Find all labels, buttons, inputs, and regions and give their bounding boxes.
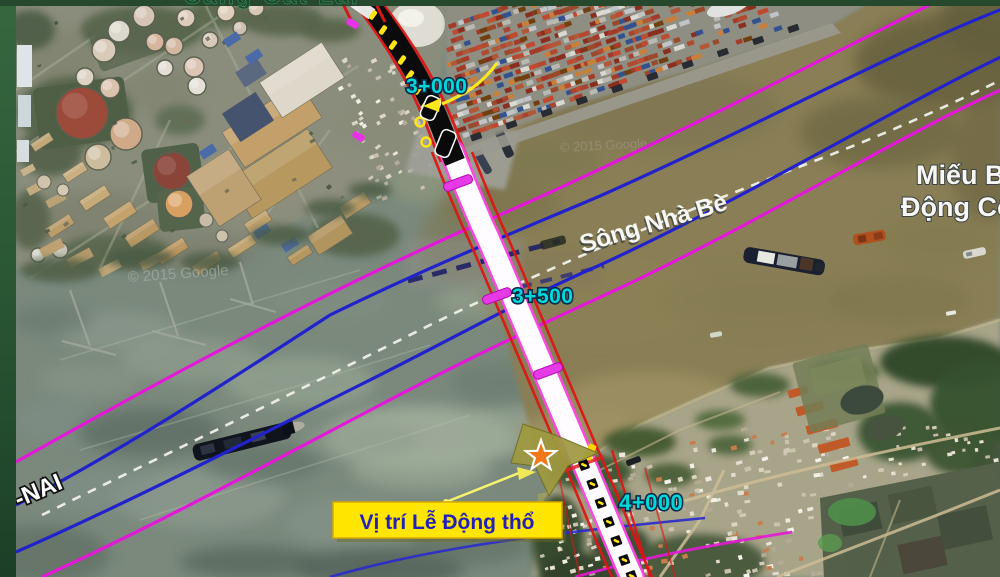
svg-text:Động Cổ: Động Cổ <box>901 192 1000 222</box>
svg-text:3+500: 3+500 <box>512 285 573 308</box>
svg-text:3+000: 3+000 <box>406 75 467 98</box>
svg-text:Miếu B: Miếu B <box>916 160 1000 190</box>
svg-text:4+000: 4+000 <box>619 490 683 515</box>
svg-text:Vị trí Lễ Động thổ: Vị trí Lễ Động thổ <box>360 510 535 534</box>
svg-text:Cảng Cát Lái: Cảng Cát Lái <box>183 0 360 10</box>
